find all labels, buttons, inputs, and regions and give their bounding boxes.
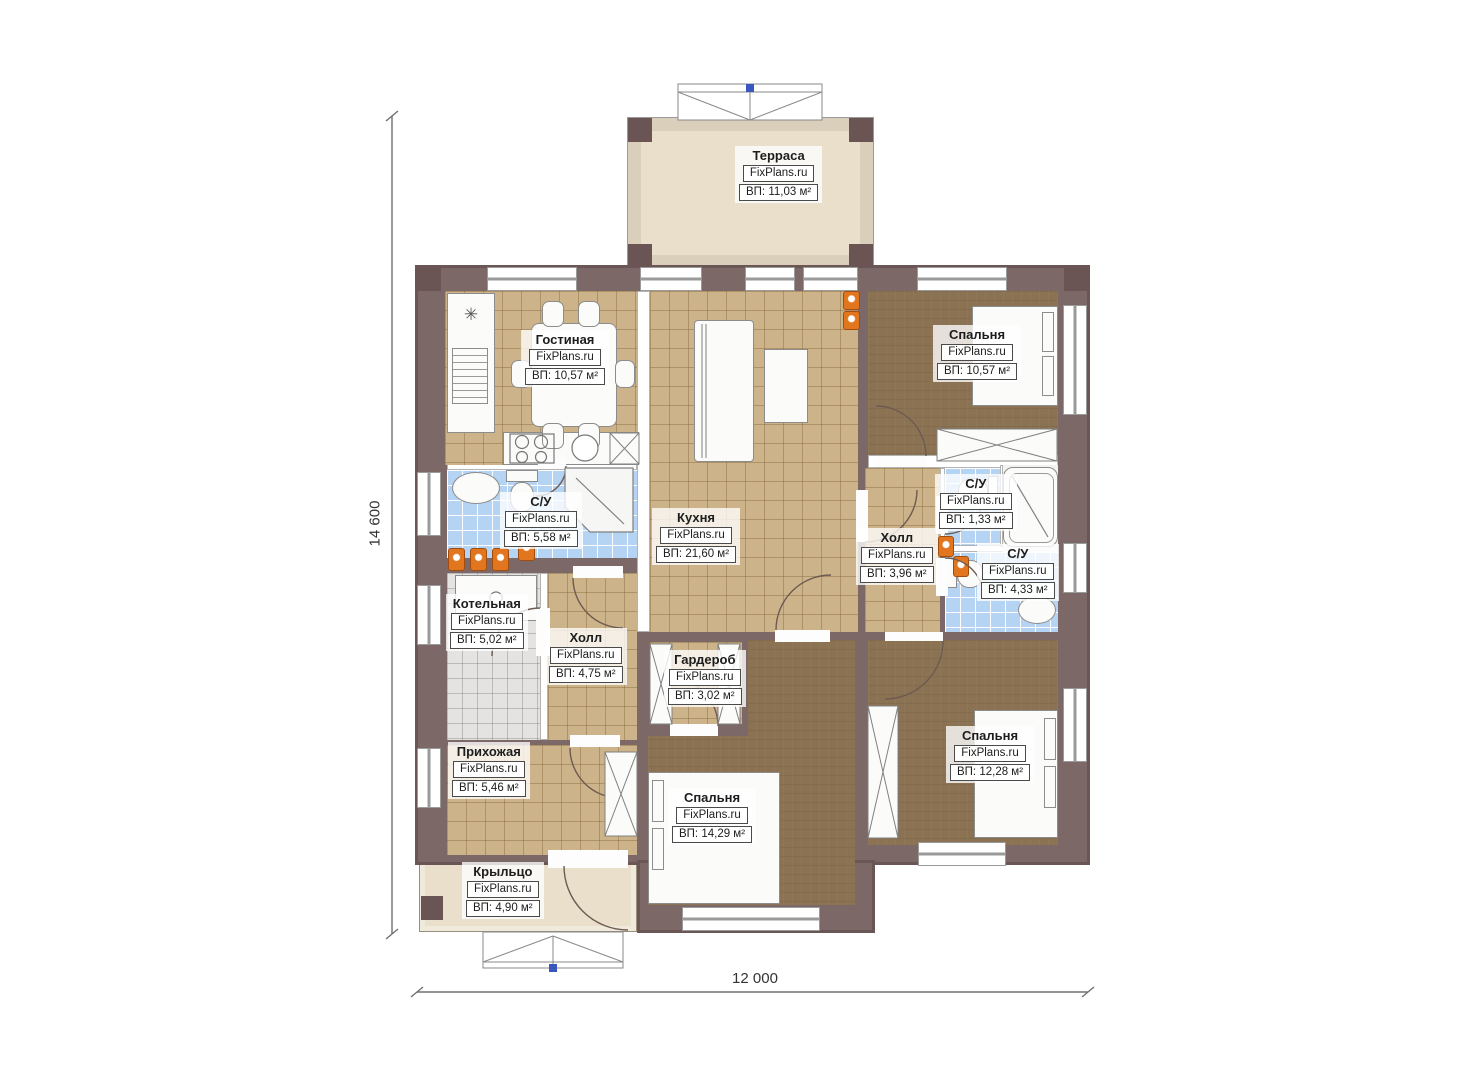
window [803, 267, 858, 291]
watermark: FixPlans.ru [982, 563, 1054, 580]
radiator-icon [843, 291, 860, 310]
room-area: ВП: 5,46 м² [452, 780, 526, 797]
watermark: FixPlans.ru [940, 493, 1012, 510]
stairs-marker-dot [549, 964, 557, 972]
pillow [1044, 766, 1056, 808]
terrace-post [849, 118, 873, 142]
room-name: Прихожая [457, 744, 521, 759]
watermark: FixPlans.ru [743, 165, 815, 182]
room-label-bedroom1: Спальня FixPlans.ru ВП: 10,57 м² [933, 325, 1021, 382]
room-label-terrace: Терраса FixPlans.ru ВП: 11,03 м² [735, 146, 822, 203]
radiator-icon [470, 548, 487, 571]
radiator-icon [953, 556, 969, 577]
room-label-hall2: Холл FixPlans.ru ВП: 4,75 м² [545, 628, 627, 685]
door-opening [670, 724, 718, 736]
door-opening [538, 459, 566, 469]
room-name: Гардероб [674, 652, 735, 667]
window [417, 472, 441, 536]
room-area: ВП: 1,33 м² [939, 512, 1013, 529]
room-area: ВП: 3,96 м² [860, 566, 934, 583]
room-label-bedroom3: Спальня FixPlans.ru ВП: 12,28 м² [946, 726, 1034, 783]
fridge-icon: ✳ [447, 295, 495, 335]
window [1063, 543, 1087, 593]
terrace-post [628, 118, 652, 142]
room-name: Гостиная [536, 332, 595, 347]
chair [578, 423, 600, 449]
sofa [694, 320, 754, 462]
window [1063, 305, 1087, 415]
watermark: FixPlans.ru [467, 881, 539, 898]
room-label-kitchen: Кухня FixPlans.ru ВП: 21,60 м² [652, 508, 740, 565]
door-opening [570, 735, 620, 747]
room-label-hall1: Холл FixPlans.ru ВП: 3,96 м² [856, 528, 938, 585]
room-label-wardrobe: Гардероб FixPlans.ru ВП: 3,02 м² [664, 650, 746, 707]
window [917, 267, 1007, 291]
terrace-door-window [640, 267, 702, 291]
room-name: Котельная [453, 596, 521, 611]
dimension-width-label: 12 000 [715, 970, 795, 987]
room-name: Крыльцо [473, 864, 532, 879]
room-area: ВП: 12,28 м² [950, 764, 1030, 781]
room-name: Спальня [962, 728, 1018, 743]
room-label-boiler: Котельная FixPlans.ru ВП: 5,02 м² [446, 594, 528, 651]
room-label-entry: Прихожая FixPlans.ru ВП: 5,46 м² [448, 742, 530, 799]
watermark: FixPlans.ru [861, 547, 933, 564]
room-area: ВП: 11,03 м² [739, 184, 818, 201]
watermark: FixPlans.ru [941, 344, 1013, 361]
window [918, 842, 1006, 866]
terrace-post [628, 244, 652, 268]
room-label-bath2: С/У FixPlans.ru ВП: 4,33 м² [977, 544, 1059, 601]
room-area: ВП: 3,02 м² [668, 688, 742, 705]
window [487, 267, 577, 291]
stairs-bottom [483, 932, 623, 968]
terrace-post [849, 244, 873, 268]
room-name: Кухня [677, 510, 715, 525]
toilet-tank [506, 470, 538, 482]
pillow [1042, 356, 1054, 396]
radiator-icon [492, 548, 509, 571]
room-label-living: Гостиная FixPlans.ru ВП: 10,57 м² [521, 330, 609, 387]
room-name: Спальня [684, 790, 740, 805]
chair [542, 301, 564, 327]
room-name: Холл [881, 530, 914, 545]
room-area: ВП: 5,58 м² [504, 530, 578, 547]
watermark: FixPlans.ru [453, 761, 525, 778]
room-name: Спальня [949, 327, 1005, 342]
watermark: FixPlans.ru [954, 745, 1026, 762]
room-label-wc: С/У FixPlans.ru ВП: 1,33 м² [935, 474, 1017, 531]
room-label-bedroom2: Спальня FixPlans.ru ВП: 14,29 м² [668, 788, 756, 845]
watermark: FixPlans.ru [669, 669, 741, 686]
watermark: FixPlans.ru [676, 807, 748, 824]
dimension-height-label: 14 600 [367, 489, 384, 559]
watermark: FixPlans.ru [505, 511, 577, 528]
room-area: ВП: 4,90 м² [466, 900, 540, 917]
chair [578, 301, 600, 327]
room-area: ВП: 10,57 м² [525, 368, 605, 385]
room-name: Холл [570, 630, 603, 645]
window [1063, 688, 1087, 762]
room-name: С/У [530, 494, 551, 509]
room-area: ВП: 4,33 м² [981, 582, 1055, 599]
chair [542, 423, 564, 449]
door-opening [876, 456, 926, 467]
sink [452, 472, 500, 504]
room-area: ВП: 5,02 м² [450, 632, 524, 649]
radiator-icon [843, 311, 860, 330]
watermark: FixPlans.ru [660, 527, 732, 544]
door-opening [936, 558, 948, 596]
room-area: ВП: 14,29 м² [672, 826, 752, 843]
porch-post [421, 896, 443, 920]
room-label-porch: Крыльцо FixPlans.ru ВП: 4,90 м² [462, 862, 544, 919]
watermark: FixPlans.ru [529, 349, 601, 366]
kitchen-counter-bottom [503, 432, 639, 465]
watermark: FixPlans.ru [451, 613, 523, 630]
window [417, 748, 441, 808]
room-label-bath1: С/У FixPlans.ru ВП: 5,58 м² [500, 492, 582, 549]
radiator-icon [448, 548, 465, 571]
front-door-opening [548, 850, 628, 868]
window [745, 267, 795, 291]
door-opening [775, 630, 830, 642]
door-opening [573, 566, 623, 578]
window [682, 907, 820, 931]
kitchen-floor [650, 291, 858, 632]
coffee-table [764, 349, 808, 423]
floor-plan: ✳ [0, 0, 1474, 1080]
room-name: С/У [965, 476, 986, 491]
room-area: ВП: 21,60 м² [656, 546, 736, 563]
radiator-icon [938, 536, 954, 557]
pillow [652, 828, 664, 870]
kitchen-shelf [452, 348, 488, 404]
watermark: FixPlans.ru [550, 647, 622, 664]
chair [615, 360, 635, 388]
house-corner-post [415, 265, 441, 291]
stairs-marker-dot [746, 84, 754, 92]
door-opening [885, 632, 943, 641]
room-name: С/У [1007, 546, 1028, 561]
room-area: ВП: 4,75 м² [549, 666, 623, 683]
window [417, 585, 441, 645]
pillow [1042, 312, 1054, 352]
house-corner-post [1064, 265, 1090, 291]
room-name: Терраса [752, 148, 804, 163]
room-area: ВП: 10,57 м² [937, 363, 1017, 380]
pillow [652, 780, 664, 822]
pillow [1044, 718, 1056, 760]
